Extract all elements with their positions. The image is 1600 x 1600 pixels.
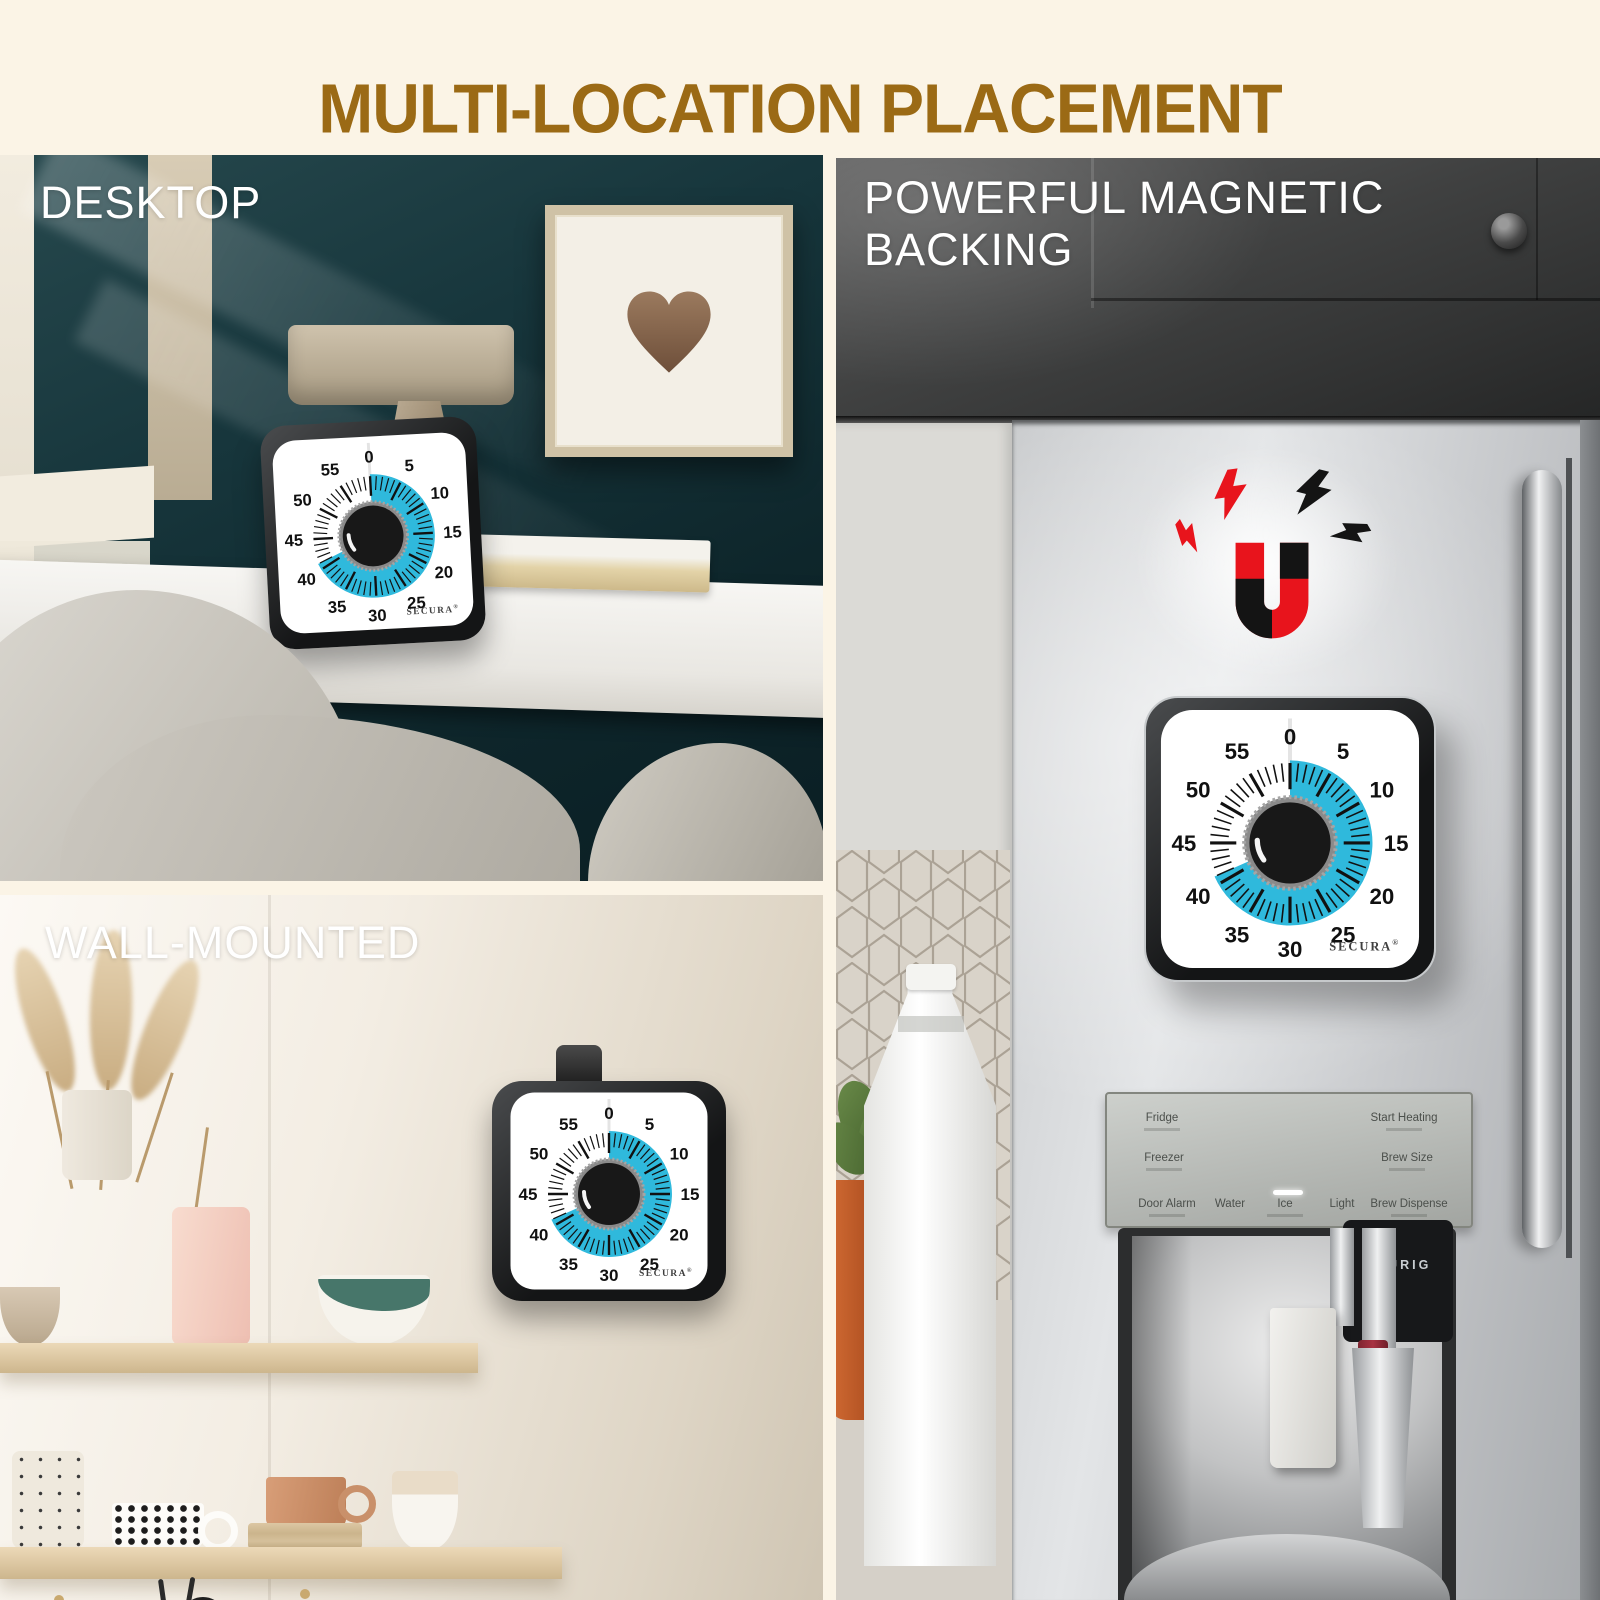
fridge-handle — [1522, 470, 1562, 1248]
keurig-brewer-module: KEURIG — [1343, 1220, 1453, 1342]
terracotta-mug — [266, 1477, 346, 1527]
dispenser-button-brew-dispense: Brew Dispense — [1370, 1198, 1447, 1210]
svg-text:50: 50 — [1186, 778, 1211, 803]
fine-print-line — [1144, 1128, 1180, 1131]
svg-text:0: 0 — [364, 447, 374, 466]
dispenser-button-light: Light — [1330, 1198, 1355, 1210]
svg-text:35: 35 — [559, 1255, 578, 1274]
scissors-blade — [158, 1579, 167, 1600]
stacked-plates — [248, 1523, 362, 1549]
svg-text:15: 15 — [1384, 831, 1409, 856]
svg-text:15: 15 — [681, 1185, 700, 1204]
dispenser-label-fridge: Fridge — [1146, 1112, 1179, 1124]
picture-frame — [545, 205, 793, 457]
svg-text:10: 10 — [430, 483, 450, 503]
svg-text:40: 40 — [529, 1226, 548, 1245]
pink-vase — [172, 1207, 250, 1345]
keurig-logo: KEURIG — [1343, 1258, 1453, 1272]
heart-photo — [617, 283, 721, 379]
dispenser-control-panel: Fridge Start Heating Freezer Brew Size D… — [1105, 1092, 1473, 1228]
svg-text:55: 55 — [559, 1115, 578, 1134]
terracotta-mug-handle — [338, 1485, 376, 1523]
svg-text:5: 5 — [1337, 739, 1349, 764]
dotted-mug — [112, 1503, 204, 1549]
svg-text:45: 45 — [1172, 831, 1197, 856]
fine-print-line-6 — [1267, 1214, 1303, 1217]
visual-timer-wall: 0510152025303540455055SECURA® — [492, 1081, 726, 1301]
svg-text:40: 40 — [1186, 884, 1211, 909]
svg-text:30: 30 — [1278, 937, 1303, 962]
shelf-peg — [54, 1595, 64, 1600]
timer-dial: 0510152025303540455055SECURA® — [1156, 708, 1424, 970]
white-bowl — [392, 1471, 458, 1549]
svg-text:55: 55 — [1225, 739, 1250, 764]
timer-dial: 0510152025303540455055SECURA® — [270, 426, 476, 640]
shelf-peg-2 — [300, 1589, 310, 1599]
svg-text:55: 55 — [320, 460, 340, 480]
milk-bottle — [864, 976, 996, 1566]
svg-text:SECURA®: SECURA® — [1329, 938, 1400, 953]
svg-text:35: 35 — [1225, 923, 1250, 948]
dispenser-paddle — [1270, 1308, 1336, 1468]
panel-desktop: 0510152025303540455055SECURA® DESKTOP — [0, 155, 823, 881]
timer-dial: 0510152025303540455055SECURA® — [502, 1091, 716, 1291]
milk-bottle-neck-ring — [898, 1016, 964, 1032]
wall-mounted-label: WALL-MOUNTED — [45, 917, 420, 969]
dispenser-button-water: Water — [1215, 1198, 1245, 1210]
visual-timer-fridge: 0510152025303540455055SECURA® — [1144, 696, 1436, 982]
fine-print-line-7 — [1391, 1214, 1427, 1217]
magnetic-backing-label: POWERFUL MAGNETIC BACKING — [864, 172, 1600, 276]
milk-bottle-cap — [906, 964, 956, 990]
svg-text:15: 15 — [443, 522, 463, 542]
svg-text:0: 0 — [1284, 725, 1296, 750]
dispenser-label-brew-size: Brew Size — [1381, 1152, 1433, 1164]
svg-text:5: 5 — [645, 1115, 654, 1134]
svg-text:50: 50 — [529, 1145, 548, 1164]
panel-magnetic-backing: 0510152025303540455055SECURA® Fridge Sta… — [836, 158, 1600, 1600]
fridge-door-edge — [1580, 420, 1600, 1600]
pampas-plume-3 — [118, 953, 211, 1107]
scissors-blade-2 — [186, 1577, 196, 1600]
dispenser-label-start-heating: Start Heating — [1370, 1112, 1437, 1124]
armchair-second — [588, 743, 823, 881]
green-glaze-band — [318, 1279, 430, 1311]
dispenser-button-door-alarm: Door Alarm — [1138, 1198, 1196, 1210]
product-marketing-image: MULTI-LOCATION PLACEMENT 0510152025303 — [0, 0, 1600, 1600]
fine-print-line-3 — [1146, 1168, 1182, 1171]
svg-text:35: 35 — [327, 597, 347, 617]
pampas-vase — [62, 1090, 132, 1180]
dispenser-tube-2 — [1362, 1228, 1396, 1348]
dispenser-label-freezer: Freezer — [1144, 1152, 1184, 1164]
svg-text:10: 10 — [1369, 778, 1394, 803]
dispenser-indicator-dash — [1273, 1190, 1303, 1195]
svg-text:20: 20 — [434, 562, 454, 582]
niche-shadow — [1132, 1236, 1192, 1600]
svg-text:SECURA®: SECURA® — [639, 1267, 693, 1279]
speckled-vase — [12, 1451, 84, 1549]
fridge-door-seam — [1566, 458, 1572, 1258]
svg-text:40: 40 — [297, 570, 317, 590]
svg-text:20: 20 — [670, 1226, 689, 1245]
wood-shelf-lower — [0, 1547, 562, 1579]
desktop-label: DESKTOP — [40, 177, 261, 229]
panel-wall-mounted: 0510152025303540455055SECURA® WALL-MOUNT… — [0, 895, 823, 1600]
wood-shelf-upper — [0, 1343, 478, 1373]
fine-print-line-4 — [1389, 1168, 1425, 1171]
svg-text:45: 45 — [519, 1185, 538, 1204]
svg-text:45: 45 — [284, 530, 304, 550]
magnet-icon — [1219, 528, 1325, 660]
dispenser-button-ice: Ice — [1277, 1198, 1292, 1210]
svg-text:50: 50 — [293, 490, 313, 510]
dotted-mug-handle — [198, 1511, 238, 1551]
svg-text:5: 5 — [404, 456, 414, 475]
visual-timer-desktop: 0510152025303540455055SECURA® — [259, 416, 486, 651]
svg-text:10: 10 — [670, 1145, 689, 1164]
dispenser-alcove: KEURIG — [1118, 1228, 1456, 1600]
green-white-bowl — [318, 1275, 430, 1345]
fine-print-line-2 — [1386, 1128, 1422, 1131]
ceramic-bowl-beige — [0, 1287, 60, 1345]
page-title: MULTI-LOCATION PLACEMENT — [0, 68, 1600, 149]
lamp-shade — [288, 325, 514, 405]
svg-text:30: 30 — [368, 606, 388, 626]
svg-text:30: 30 — [600, 1266, 619, 1285]
cabinet-panel-line-2 — [1091, 298, 1600, 301]
svg-text:20: 20 — [1369, 884, 1394, 909]
window-sill — [0, 466, 154, 549]
fine-print-line-5 — [1149, 1214, 1185, 1217]
dried-stem — [194, 1127, 209, 1213]
svg-text:0: 0 — [604, 1104, 613, 1123]
